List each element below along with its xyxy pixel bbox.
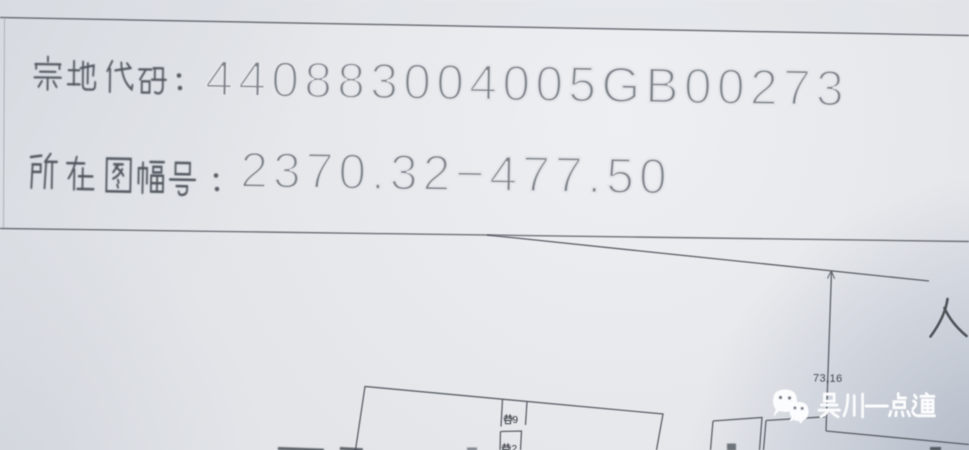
svg-text:9: 9: [513, 415, 519, 426]
svg-text:2: 2: [512, 444, 518, 450]
svg-text:440883004005GB00273: 440883004005GB00273: [205, 51, 850, 117]
svg-text:73,16: 73,16: [813, 373, 843, 386]
svg-text:2370.32−477.50: 2370.32−477.50: [240, 142, 672, 205]
